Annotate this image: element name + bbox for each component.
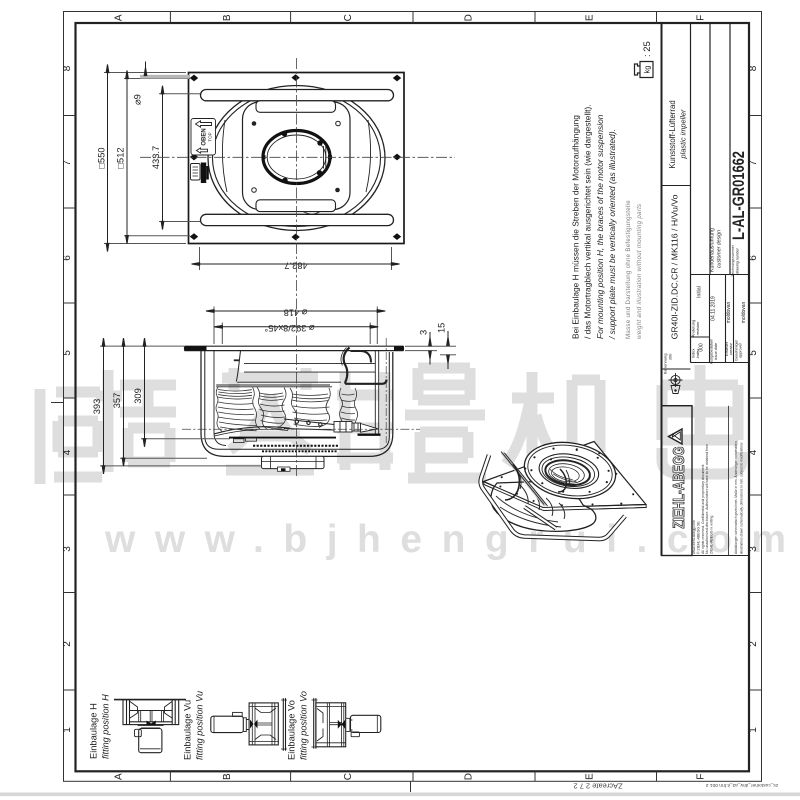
svg-text:E: E [585,14,596,21]
svg-text:6: 6 [748,255,759,261]
svg-text:7: 7 [62,160,73,166]
svg-text:Einbaulage H: Einbaulage H [89,703,99,759]
svg-text:3: 3 [748,546,759,552]
svg-text:No unauthorized disclosure. Au: No unauthorized disclosure. Authorizatio… [705,444,709,554]
svg-text:Ausgabedatum: Ausgabedatum [710,339,714,365]
svg-text:3: 3 [62,546,73,552]
svg-text:TOP: TOP [208,132,213,141]
svg-text:B: B [222,14,233,21]
svg-text:5: 5 [748,350,759,356]
svg-text:zs_customer_drw_a3_it.frm 001: zs_customer_drw_a3_it.frm 001 2 [706,782,779,788]
svg-text:illustrations drawn schematica: illustrations drawn schematically. dimen… [740,442,744,554]
svg-text:7: 7 [748,160,759,166]
svg-text:F: F [696,774,707,780]
svg-text:1: 1 [62,727,73,733]
svg-text:Initial: Initial [697,286,703,298]
svg-text:Kundenausführung: Kundenausführung [710,228,716,272]
svg-text:04.11.2019: 04.11.2019 [711,296,717,321]
svg-text:2: 2 [748,641,759,647]
svg-text:2: 2 [62,641,73,647]
svg-text:L-AL-GR01662: L-AL-GR01662 [730,151,748,240]
svg-text:Einbaulage Vu: Einbaulage Vu [183,700,193,760]
svg-text:8: 8 [748,65,759,71]
svg-text:15: 15 [437,323,447,333]
svg-text:All rights reserved. Confident: All rights reserved. Confidential and pr… [701,464,705,554]
svg-text:weight and illustration withou: weight and illustration without mounting… [636,204,643,339]
svg-text:4: 4 [62,449,73,455]
svg-text:⌀9: ⌀9 [133,94,143,105]
svg-text:ZAcreate 2 7 2: ZAcreate 2 7 2 [573,782,622,791]
svg-text:Abbildungen schematisch gezeic: Abbildungen schematisch gezeichnet. Maße… [734,440,738,554]
svg-text:Bei Einbaulage H müssen die St: Bei Einbaulage H müssen die Streben der … [571,115,581,339]
svg-text:fitting position Vu: fitting position Vu [195,691,205,760]
svg-text:© ZIEHL-ABEGG SE: © ZIEHL-ABEGG SE [696,521,700,554]
svg-text:483.7: 483.7 [284,260,307,270]
svg-text:creator: creator [729,342,733,355]
svg-text:000: 000 [699,343,705,352]
svg-text:393: 393 [92,399,102,415]
svg-text:plastic impeller: plastic impeller [679,109,688,159]
svg-text:title: title [668,353,673,360]
svg-text:□512: □512 [116,147,126,168]
svg-text:approver: approver [739,342,743,358]
svg-text:C: C [343,773,354,780]
svg-text:issue date: issue date [714,343,718,360]
svg-text:revision: revision [695,321,700,336]
svg-text:D: D [464,14,475,21]
svg-text:ZIEHL-ABEGG in writing.: ZIEHL-ABEGG in writing. [710,515,714,554]
svg-text:3: 3 [419,330,429,335]
svg-text:fitting position H: fitting position H [101,694,111,759]
svg-text:4: 4 [748,449,759,455]
svg-text:Masse und Darstellung ohne Bef: Masse und Darstellung ohne Befestigungst… [625,200,632,339]
svg-text:customer design: customer design [717,230,723,268]
svg-text:moldovan: moldovan [726,301,732,323]
svg-text:drawing number: drawing number [736,247,740,274]
svg-text:Zeichnungsnummer: Zeichnungsnummer [731,244,735,277]
svg-text:E: E [585,773,596,780]
svg-text:For mounting position H, the b: For mounting position H, the braces of t… [595,114,605,339]
svg-text:Kunststoff-Lüfterrad: Kunststoff-Lüfterrad [668,100,677,168]
svg-text:kg: kg [643,66,652,74]
svg-text:GR40I-ZID.DC.CR / MK116 / H/Vu: GR40I-ZID.DC.CR / MK116 / H/Vu/Vo [670,194,680,339]
svg-text:Einbaulage Vo: Einbaulage Vo [287,700,297,760]
svg-text:6: 6 [62,255,73,261]
svg-text:A: A [114,773,125,780]
svg-text:/ support plate must be vertic: / support plate must be vertically orien… [607,129,617,340]
svg-text:www.ziehl-abegg.com: www.ziehl-abegg.com [692,520,696,554]
svg-text:fitting position Vo: fitting position Vo [299,691,309,760]
svg-text:357: 357 [112,393,122,409]
svg-text:8: 8 [62,65,73,71]
svg-text:⌀ 392/8x45°: ⌀ 392/8x45° [264,323,314,333]
svg-text:5: 5 [62,350,73,356]
svg-text:D: D [464,773,475,780]
svg-text:moldovan: moldovan [741,301,747,323]
svg-text:1: 1 [748,727,759,733]
svg-text:A: A [114,14,125,21]
svg-text:F: F [696,15,707,21]
svg-text:C: C [343,14,354,21]
svg-text:: 25: : 25 [642,41,653,57]
svg-text:309: 309 [133,388,143,404]
svg-text:□550: □550 [97,147,107,168]
svg-text:/ das Motortragblech vertikal: / das Motortragblech vertikal ausgericht… [583,104,593,339]
svg-text:B: B [222,773,233,780]
svg-text:ZIEHL-ABEGG: ZIEHL-ABEGG [671,447,688,529]
svg-text:⌀ 418: ⌀ 418 [284,307,308,317]
